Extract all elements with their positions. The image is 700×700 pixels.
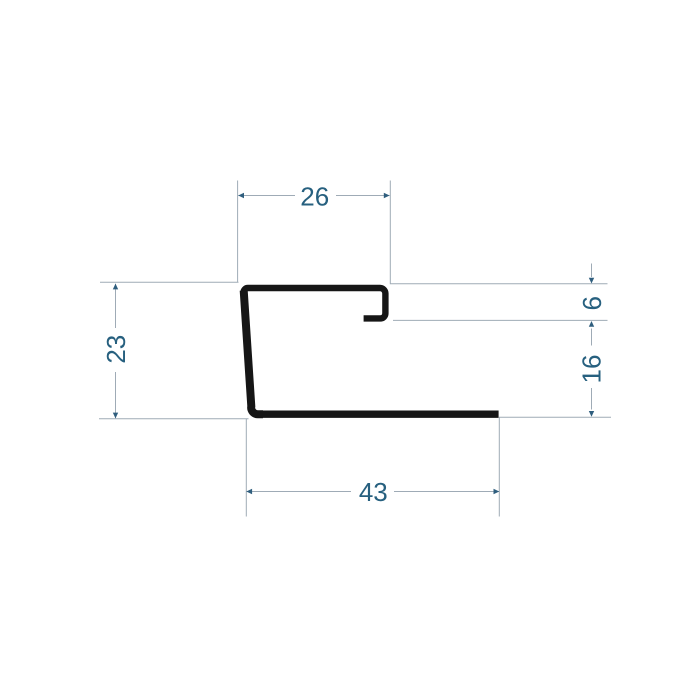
svg-text:26: 26 (300, 181, 329, 211)
svg-text:43: 43 (359, 477, 388, 507)
svg-text:16: 16 (577, 355, 607, 384)
svg-text:6: 6 (577, 296, 607, 310)
svg-text:23: 23 (101, 335, 131, 364)
